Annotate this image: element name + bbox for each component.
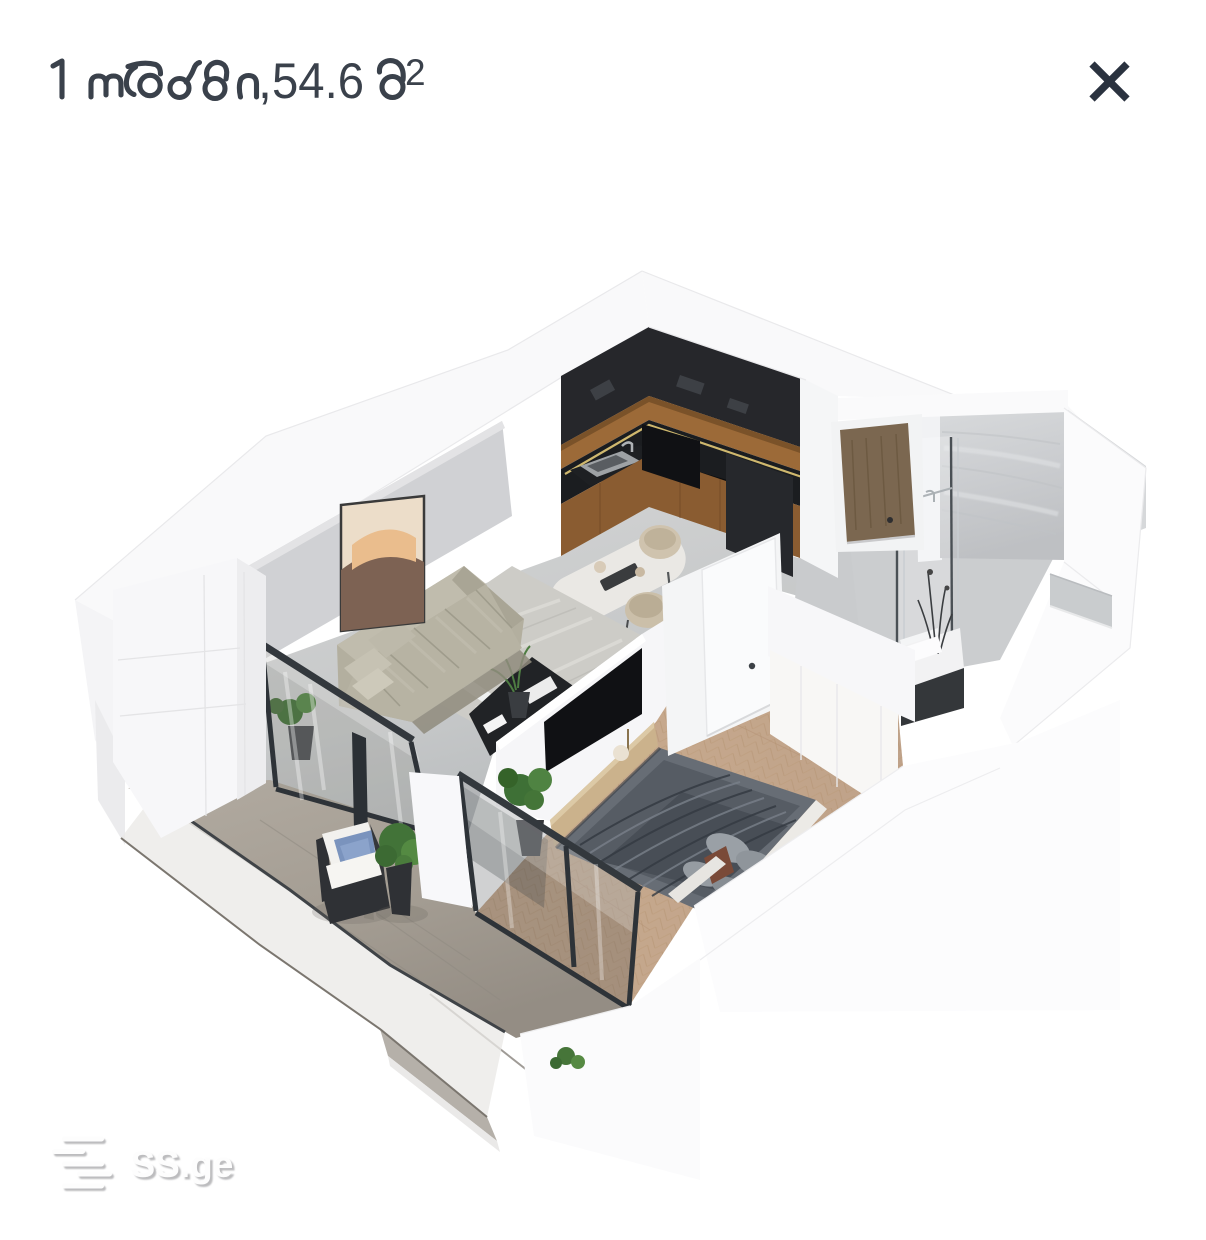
svg-text:2: 2 <box>405 52 426 93</box>
svg-text:SS.ge: SS.ge <box>131 1144 234 1185</box>
svg-text:54.6: 54.6 <box>272 53 364 109</box>
svg-text:,: , <box>258 53 272 109</box>
